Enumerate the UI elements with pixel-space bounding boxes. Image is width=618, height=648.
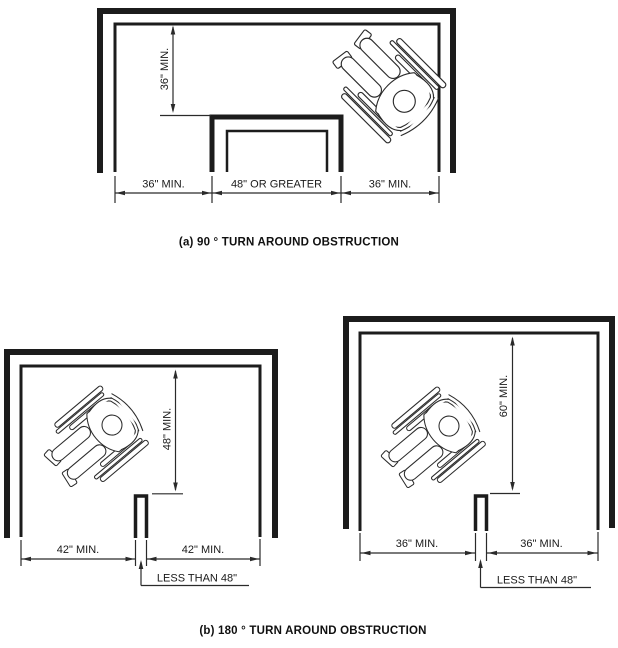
wheelchair-user-figure	[33, 380, 156, 500]
arrow-up-icon	[171, 26, 176, 35]
vertical-dimension: 48" MIN.	[152, 370, 183, 494]
obstruction-wall	[476, 496, 487, 531]
vertical-dimension: 36" MIN.	[159, 26, 211, 116]
obstruction-width-callout: LESS THAN 48"	[139, 560, 249, 586]
diagram-b-right: 60" MIN. 36" MIN. 36" MIN. LESS THAN 48"	[346, 319, 612, 588]
dim-label-left: 42" MIN.	[57, 544, 99, 556]
obstruction-dim-label: LESS THAN 48"	[157, 573, 237, 585]
dim-label-right: 36" MIN.	[520, 538, 562, 550]
dim-label-right: 36" MIN.	[369, 179, 411, 191]
wheelchair-user-figure	[370, 381, 493, 501]
dim-label-right: 42" MIN.	[182, 544, 224, 556]
diagram-b-left: 48" MIN. 42" MIN. 42" MIN. LESS THAN 48"	[7, 352, 275, 586]
caption-a: (a) 90 ° TURN AROUND OBSTRUCTION	[179, 237, 399, 249]
vertical-dimension: 60" MIN.	[490, 337, 520, 494]
dim-label-vertical: 60" MIN.	[498, 375, 510, 417]
dim-label-center: 48" OR GREATER	[231, 179, 322, 191]
obstruction-outer-wall	[212, 117, 341, 172]
dim-label-left: 36" MIN.	[142, 179, 184, 191]
bottom-dimensions: 36" MIN. 36" MIN.	[360, 532, 598, 561]
arrow-up-icon	[139, 560, 144, 569]
diagram-a: 36" MIN. 36" MIN. 48" OR GREATER 36" MIN…	[100, 11, 453, 249]
arrow-up-icon	[478, 559, 483, 568]
obstruction-dim-label: LESS THAN 48"	[497, 575, 577, 587]
bottom-dimensions: 42" MIN. 42" MIN.	[21, 539, 260, 566]
dim-label-left: 36" MIN.	[396, 538, 438, 550]
obstruction-wall	[136, 496, 147, 538]
bottom-dimensions: 36" MIN. 48" OR GREATER 36" MIN.	[115, 176, 439, 203]
turn-around-obstruction-figure: 36" MIN. 36" MIN. 48" OR GREATER 36" MIN…	[0, 0, 618, 648]
dim-label-vertical: 48" MIN.	[162, 408, 174, 450]
arrow-down-icon	[171, 104, 176, 113]
dim-label-vertical: 36" MIN.	[159, 48, 171, 90]
caption-b: (b) 180 ° TURN AROUND OBSTRUCTION	[199, 625, 426, 637]
obstruction-width-callout: LESS THAN 48"	[478, 559, 591, 588]
figure-canvas: 36" MIN. 36" MIN. 48" OR GREATER 36" MIN…	[0, 0, 618, 648]
obstruction-inner-face	[227, 131, 327, 172]
